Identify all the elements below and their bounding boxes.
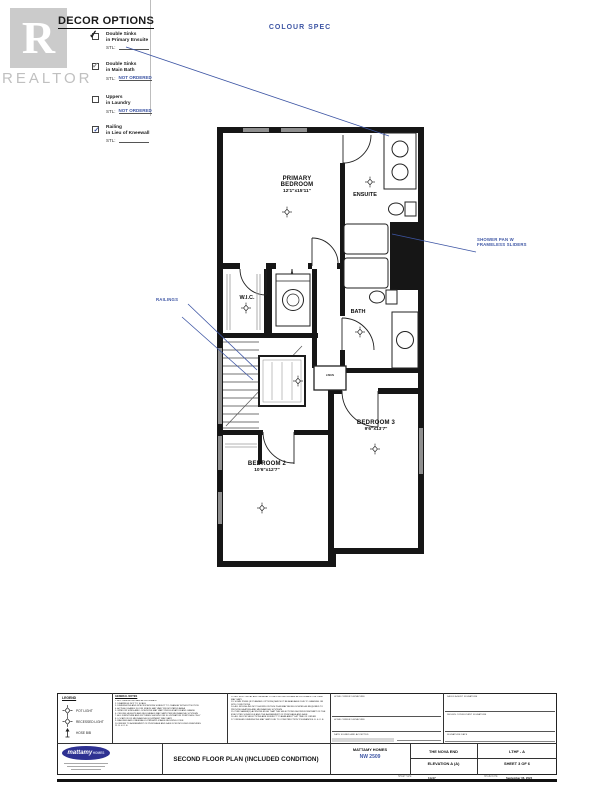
date-accepted-highlight — [332, 738, 394, 742]
drawing-title: SECOND FLOOR PLAN (INCLUDED CONDITION) — [162, 756, 330, 763]
consultant-signature-label: DESIGN CONSULTANT SIGNATURE — [447, 714, 486, 716]
signature-date-label: SIGNATURE DATE — [447, 734, 467, 736]
bath-toilet — [370, 291, 385, 303]
bath-toilet-tank — [386, 290, 397, 304]
page-bottom-rule — [57, 779, 557, 782]
company-cell: MATTAMY HOMES NW 2509 — [330, 747, 410, 760]
sheet-size-value: 11x17 — [428, 776, 436, 780]
legend-item-recessed-light: RECESSED LIGHT — [62, 716, 104, 727]
logo-address-line — [64, 763, 108, 764]
signature-line[interactable] — [397, 740, 441, 741]
signature-line[interactable] — [332, 731, 441, 732]
home-owner-signature-1-label: HOME OWNER SIGNATURE — [334, 696, 365, 698]
room-label-ensuite: ENSUITE — [344, 192, 386, 198]
railings-annotation: RAILINGS — [156, 297, 196, 302]
room-label-bath: BATH — [344, 309, 372, 315]
issue-date-value: September 06, 2022 — [506, 776, 532, 780]
room-label-linen: LINEN — [314, 374, 346, 377]
recessed-light-icon — [62, 716, 73, 727]
floor-plan-drawing — [0, 0, 612, 792]
signature-line[interactable] — [332, 716, 441, 717]
hose-bib-icon — [62, 727, 73, 738]
ensuite-sink-2 — [392, 164, 408, 180]
logo-address-line — [67, 766, 105, 767]
signature-line[interactable] — [445, 711, 555, 712]
room-label-bedroom3: BEDROOM 3 9'6"x13'7" — [332, 420, 420, 432]
title-block-divider — [227, 693, 228, 743]
mattamy-logo: mattamyHOMES — [62, 746, 110, 760]
general-notes-col2: 12. ALL ELECTRICAL AND GENERAL LOCATIONS… — [231, 696, 327, 741]
legend-item-hose-bib: HOSE BIB — [62, 727, 91, 738]
room-label-primary-bedroom: PRIMARY BEDROOM 12'1"x15'11" — [269, 176, 325, 194]
floor-plan-page: R REALTOR DECOR OPTIONS ✓ Double Sinks i… — [0, 0, 612, 792]
signature-line[interactable] — [445, 741, 555, 742]
sheet-size-label: SHEET SIZE — [398, 776, 411, 778]
shower-pan-1 — [344, 224, 388, 254]
room-label-wic: W.I.C. — [228, 295, 266, 301]
home-owner-signature-2-label: HOME OWNER SIGNATURE — [334, 719, 365, 721]
logo-address-line — [71, 769, 101, 770]
title-block-divider — [330, 693, 331, 775]
legend-title: LEGEND — [62, 696, 76, 700]
stair-landing-railing — [259, 356, 305, 406]
sheet-cell: LTHF - A SHEET 3 OF 6 — [477, 749, 557, 766]
title-block-divider — [443, 693, 444, 743]
pot-light-icon — [62, 705, 73, 716]
ensuite-toilet-tank — [405, 202, 416, 216]
shower-pan-2 — [344, 258, 388, 288]
sales-agent-signature-label: SALES AGENT SIGNATURE — [447, 696, 477, 698]
room-label-bedroom2: BEDROOM 2 10'6"x12'7" — [224, 461, 310, 473]
model-cell: THE NOVA END ELEVATION A (A) — [410, 749, 477, 766]
bath-sink — [397, 332, 414, 349]
ensuite-sink-1 — [392, 141, 408, 157]
plan-code: LTHF - A — [477, 749, 557, 754]
shower-annotation: SHOWER PAN W FRAMELESS SLIDERS — [477, 237, 547, 247]
general-notes-title: GENERAL NOTES — [115, 695, 137, 698]
company-name: MATTAMY HOMES — [330, 747, 410, 752]
ensuite-toilet — [389, 203, 404, 215]
signature-line[interactable] — [445, 731, 555, 732]
leader-double-sinks — [126, 47, 389, 136]
legend-item-pot-light: POT LIGHT — [62, 705, 93, 716]
issue-date-label: ISSUE DATE — [484, 776, 498, 778]
title-block-divider — [57, 743, 557, 744]
project-code: NW 2509 — [330, 754, 410, 760]
sheet-number: SHEET 3 OF 6 — [477, 761, 557, 766]
date-accepted-label: DATE SIGNED AND ACCEPTED — [334, 734, 369, 736]
elevation-label: ELEVATION A (A) — [410, 761, 477, 766]
linen-closet — [314, 366, 346, 390]
title-block-divider — [112, 693, 113, 743]
general-notes-col1: 1. ALL DIMENSIONS ARE APPROXIMATE 2. DRA… — [115, 700, 224, 741]
model-name: THE NOVA END — [410, 749, 477, 754]
